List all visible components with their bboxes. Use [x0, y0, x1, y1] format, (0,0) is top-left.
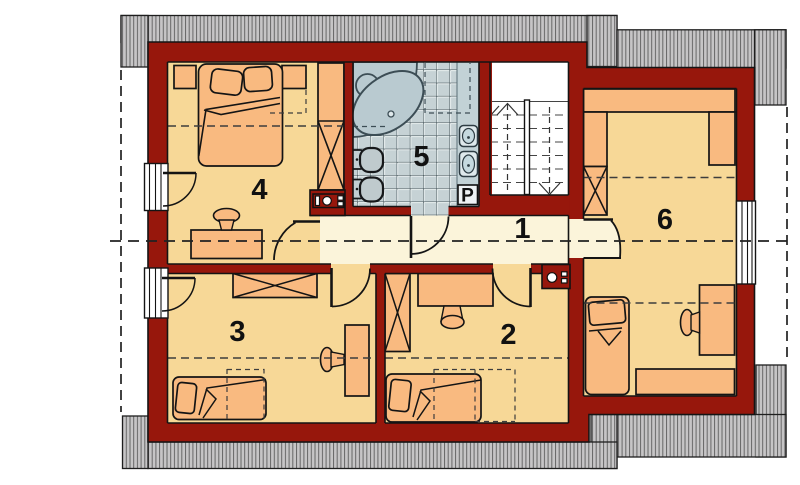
svg-text:5: 5	[413, 141, 429, 173]
svg-text:6: 6	[657, 204, 673, 236]
svg-text:2: 2	[500, 319, 516, 351]
svg-text:4: 4	[251, 174, 267, 206]
svg-text:P: P	[461, 186, 474, 207]
svg-text:1: 1	[514, 213, 530, 245]
svg-text:3: 3	[229, 316, 245, 348]
